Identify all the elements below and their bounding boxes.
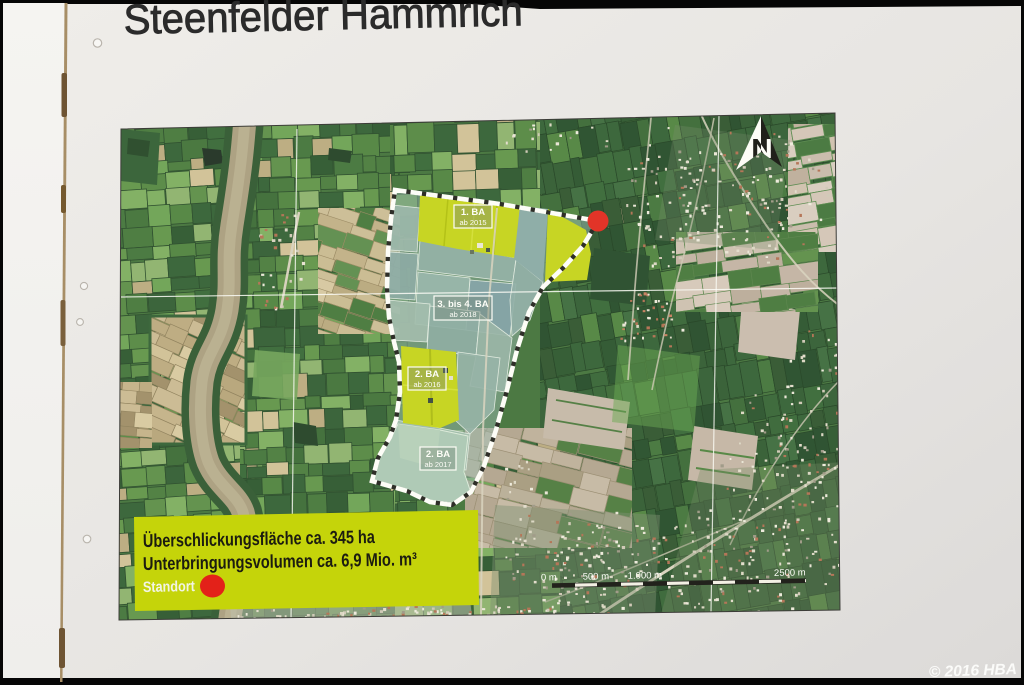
svg-text:Standort: Standort	[143, 578, 195, 596]
svg-text:Überschlickungsfläche ca. 345: Überschlickungsfläche ca. 345 ha	[143, 526, 376, 551]
svg-text:© 2016 HBA: © 2016 HBA	[929, 661, 1018, 681]
